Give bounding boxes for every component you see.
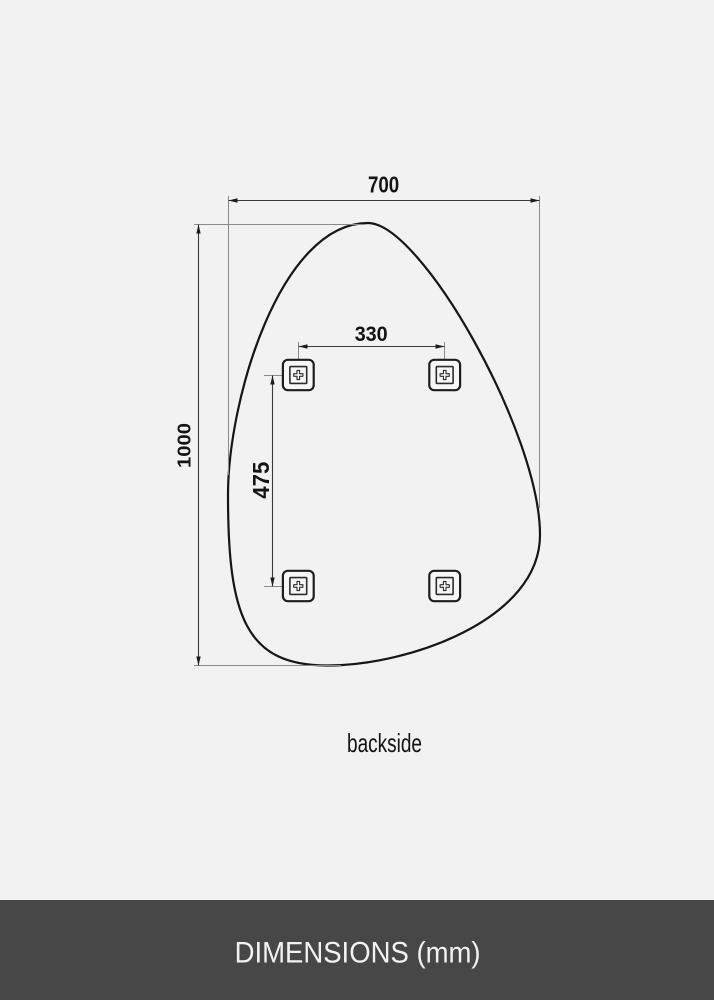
svg-text:DIMENSIONS (mm): DIMENSIONS (mm): [235, 936, 481, 969]
svg-text:475: 475: [248, 462, 274, 499]
svg-text:700: 700: [368, 172, 399, 198]
svg-text:backside: backside: [347, 728, 422, 758]
svg-text:1000: 1000: [174, 423, 195, 468]
svg-text:330: 330: [355, 323, 388, 346]
